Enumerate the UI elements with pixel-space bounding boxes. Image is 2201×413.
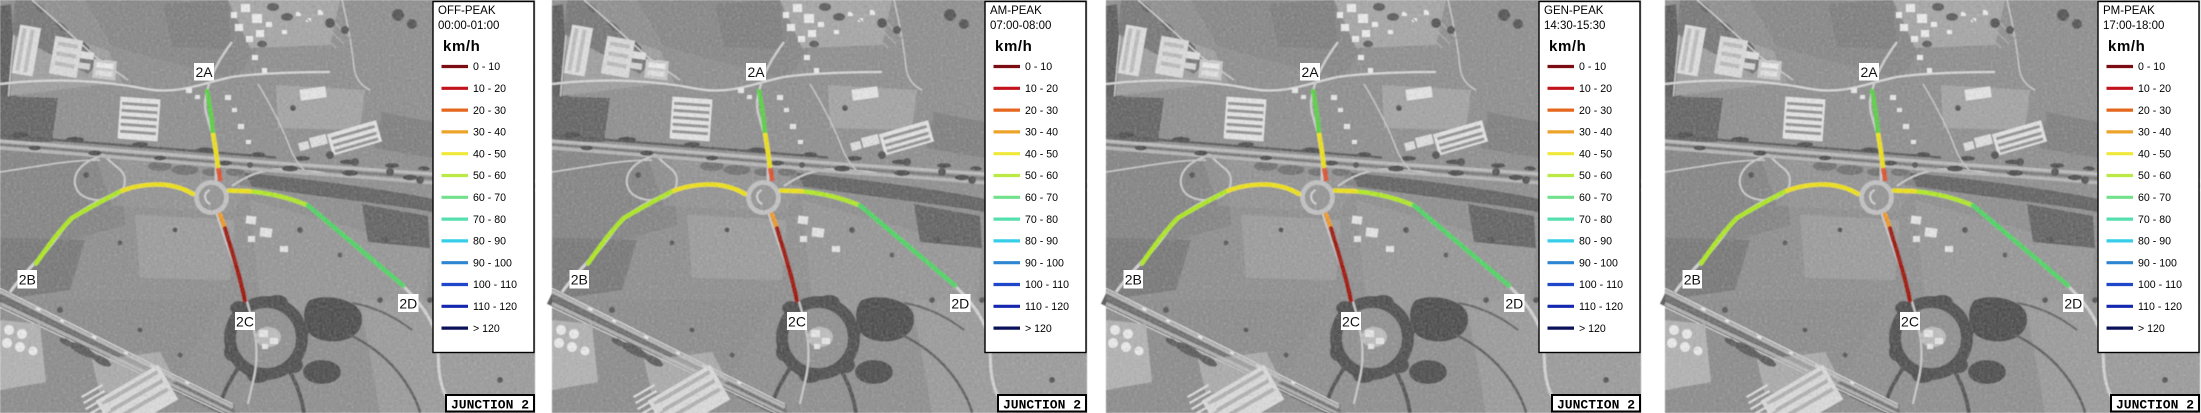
svg-text:00:00-01:00: 00:00-01:00 [438, 20, 499, 32]
svg-text:GEN-PEAK: GEN-PEAK [1544, 5, 1604, 17]
svg-text:OFF-PEAK: OFF-PEAK [438, 5, 496, 17]
svg-text:14:30-15:30: 14:30-15:30 [1544, 20, 1605, 32]
svg-text:PM-PEAK: PM-PEAK [2103, 5, 2155, 17]
svg-text:17:00-18:00: 17:00-18:00 [2103, 20, 2164, 32]
svg-text:07:00-08:00: 07:00-08:00 [990, 20, 1051, 32]
svg-text:AM-PEAK: AM-PEAK [990, 5, 1042, 17]
